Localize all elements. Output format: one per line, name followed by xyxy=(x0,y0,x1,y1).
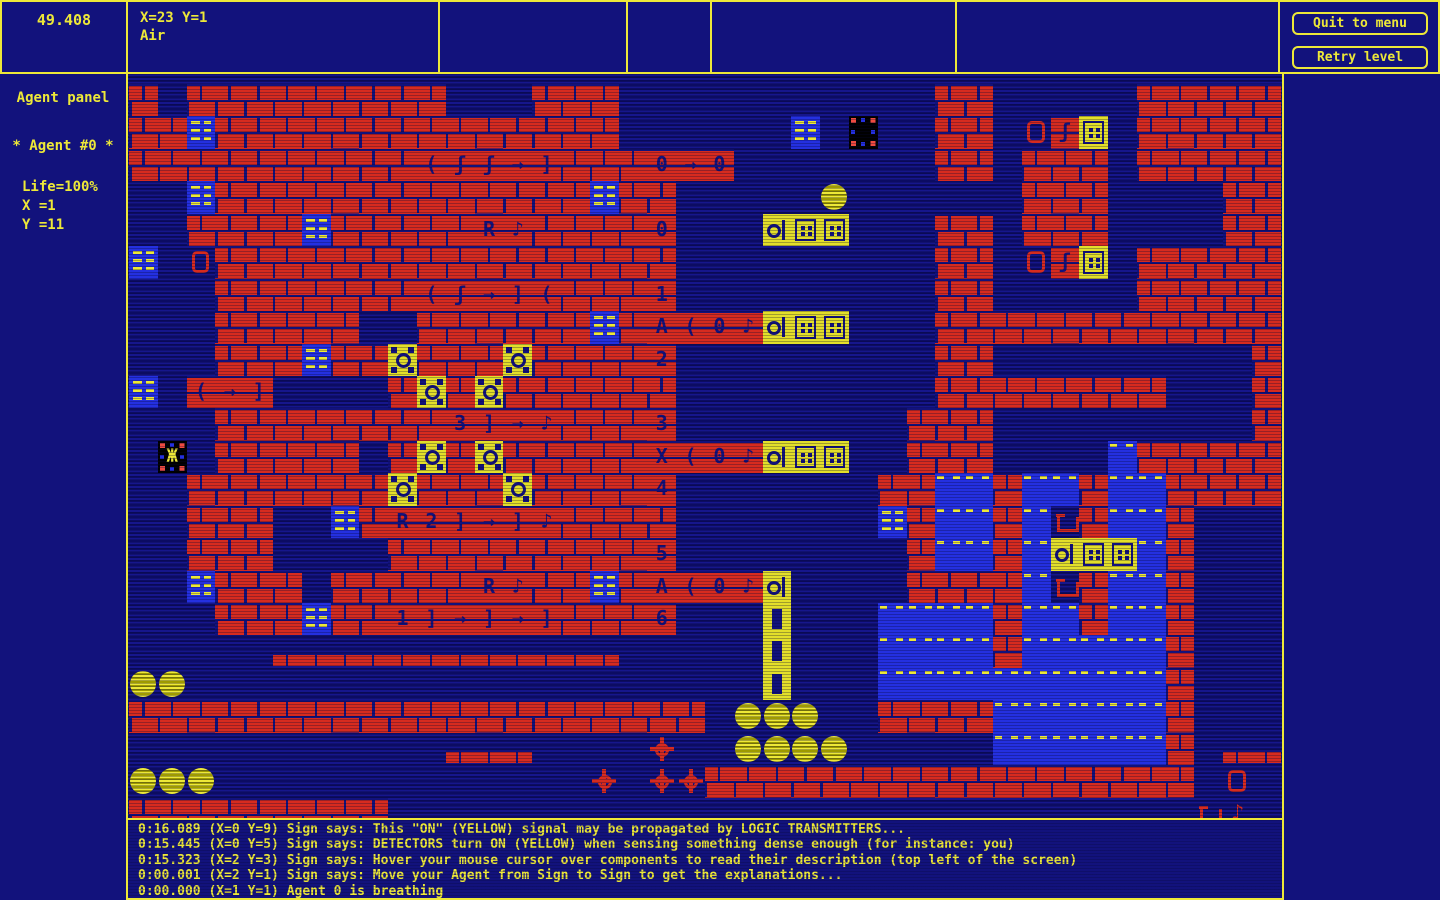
brick-wall xyxy=(590,473,619,505)
air xyxy=(302,376,331,408)
brick-wall xyxy=(417,116,446,148)
brick-wall xyxy=(619,441,648,473)
brick-wall xyxy=(273,441,302,473)
air xyxy=(676,798,705,818)
brick-wall xyxy=(561,149,590,181)
air xyxy=(1051,84,1080,116)
sign xyxy=(129,246,158,278)
brick-wall xyxy=(244,344,273,376)
brick-wall xyxy=(388,149,417,181)
air xyxy=(705,603,734,635)
air xyxy=(1108,84,1137,116)
air xyxy=(1194,668,1223,700)
air xyxy=(763,473,792,505)
chip-arrow: → xyxy=(676,149,705,181)
brick-ledge xyxy=(475,635,504,667)
brick-wall xyxy=(359,214,388,246)
brick-wall xyxy=(158,149,187,181)
air xyxy=(849,246,878,278)
brick-wall xyxy=(1252,149,1281,181)
detector-on xyxy=(503,344,532,376)
sign xyxy=(187,571,216,603)
air xyxy=(359,668,388,700)
air xyxy=(475,668,504,700)
brick-wall xyxy=(215,441,244,473)
water xyxy=(964,506,993,538)
air xyxy=(302,765,331,797)
brick-wall xyxy=(532,538,561,570)
chip-curl: ʃ xyxy=(475,149,504,181)
air xyxy=(1166,344,1195,376)
air xyxy=(302,538,331,570)
vertical-duct-on xyxy=(763,635,792,667)
brick-wall xyxy=(129,149,158,181)
air xyxy=(763,116,792,148)
air xyxy=(734,149,763,181)
air xyxy=(705,84,734,116)
yellow-ball xyxy=(129,668,158,700)
status-box-2 xyxy=(628,0,712,74)
brick-wall xyxy=(619,246,648,278)
brick-wall xyxy=(446,571,475,603)
air xyxy=(273,538,302,570)
air xyxy=(820,376,849,408)
air xyxy=(561,668,590,700)
air xyxy=(763,376,792,408)
air xyxy=(1194,733,1223,765)
brick-wall xyxy=(446,441,475,473)
air xyxy=(705,279,734,311)
level-map[interactable]: ʃ(ʃʃ→]0→0R♪0ʃ(ʃ→](1A(0♪2(→]3]→♪3ЖX(0♪4R2… xyxy=(128,74,1282,818)
brick-wall xyxy=(244,279,273,311)
brick-wall xyxy=(590,408,619,440)
air xyxy=(705,408,734,440)
air xyxy=(215,765,244,797)
status-box-3 xyxy=(712,0,957,74)
brick-wall xyxy=(359,279,388,311)
water xyxy=(1108,668,1137,700)
brick-wall xyxy=(993,635,1022,667)
brick-wall xyxy=(475,538,504,570)
air xyxy=(331,733,360,765)
transmitter-head-on xyxy=(763,571,792,603)
chip-note: ♪ xyxy=(532,408,561,440)
air xyxy=(1108,344,1137,376)
air xyxy=(619,733,648,765)
air xyxy=(647,84,676,116)
water xyxy=(1051,733,1080,765)
air xyxy=(791,181,820,213)
air xyxy=(705,246,734,278)
air xyxy=(302,506,331,538)
air xyxy=(1108,149,1137,181)
transmitter-box-on xyxy=(820,214,849,246)
air xyxy=(446,798,475,818)
agent-header: * Agent #0 * xyxy=(0,138,126,154)
brick-wall xyxy=(215,116,244,148)
air xyxy=(820,635,849,667)
yellow-ball xyxy=(158,668,187,700)
air xyxy=(446,765,475,797)
brick-wall xyxy=(561,538,590,570)
brick-wall xyxy=(388,376,417,408)
chip-arrow: → xyxy=(215,376,244,408)
chip-bracket-close: ] xyxy=(503,279,532,311)
air xyxy=(1137,344,1166,376)
brick-wall xyxy=(302,149,331,181)
air xyxy=(964,733,993,765)
sign xyxy=(302,603,331,635)
air xyxy=(907,214,936,246)
brick-wall xyxy=(273,116,302,148)
brick-wall xyxy=(1166,765,1195,797)
air xyxy=(1022,279,1051,311)
brick-wall xyxy=(935,279,964,311)
brick-wall xyxy=(1137,441,1166,473)
air xyxy=(791,571,820,603)
air xyxy=(1108,408,1137,440)
brick-wall xyxy=(215,603,244,635)
water xyxy=(907,603,936,635)
sign xyxy=(878,506,907,538)
air xyxy=(993,246,1022,278)
air xyxy=(273,668,302,700)
brick-wall xyxy=(1223,279,1252,311)
water xyxy=(1108,441,1137,473)
brick-wall xyxy=(331,279,360,311)
air xyxy=(1194,538,1223,570)
water xyxy=(1022,700,1051,732)
brick-wall xyxy=(215,344,244,376)
transmitter-box-on xyxy=(791,311,820,343)
air xyxy=(763,798,792,818)
message-log: 0:16.089 (X=0 Y=9) Sign says: This "ON" … xyxy=(128,818,1282,900)
air xyxy=(1252,798,1281,818)
air xyxy=(878,733,907,765)
brick-wall xyxy=(244,214,273,246)
brick-wall xyxy=(1194,473,1223,505)
air xyxy=(705,116,734,148)
brick-wall xyxy=(1022,149,1051,181)
air xyxy=(1252,635,1281,667)
air xyxy=(734,538,763,570)
brick-wall xyxy=(503,181,532,213)
brick-wall xyxy=(475,116,504,148)
brick-wall xyxy=(417,571,446,603)
air xyxy=(849,84,878,116)
air xyxy=(993,116,1022,148)
chip-1: 1 xyxy=(388,603,417,635)
brick-wall xyxy=(590,84,619,116)
water xyxy=(1051,700,1080,732)
air xyxy=(158,376,187,408)
brick-wall xyxy=(619,603,648,635)
brick-wall xyxy=(532,181,561,213)
water xyxy=(1079,635,1108,667)
brick-wall xyxy=(878,473,907,505)
brick-wall xyxy=(244,408,273,440)
brick-wall xyxy=(993,603,1022,635)
brick-wall xyxy=(273,181,302,213)
chip-arrow: → xyxy=(475,506,504,538)
brick-wall xyxy=(561,473,590,505)
yellow-ball xyxy=(187,765,216,797)
brick-ledge xyxy=(1223,733,1252,765)
brick-wall xyxy=(561,181,590,213)
air xyxy=(993,181,1022,213)
chip-2: 2 xyxy=(647,344,676,376)
water xyxy=(935,603,964,635)
air xyxy=(849,668,878,700)
air xyxy=(763,408,792,440)
brick-wall xyxy=(1252,441,1281,473)
brick-wall xyxy=(417,344,446,376)
chip-bracket-close: ] xyxy=(244,376,273,408)
brick-ledge xyxy=(388,635,417,667)
air xyxy=(849,603,878,635)
air xyxy=(907,181,936,213)
brick-wall xyxy=(446,181,475,213)
agent-panel: Agent panel * Agent #0 * Life=100% X =1 … xyxy=(0,74,128,900)
sign xyxy=(302,344,331,376)
water xyxy=(907,635,936,667)
brick-wall xyxy=(907,408,936,440)
water xyxy=(1137,733,1166,765)
brick-wall xyxy=(331,700,360,732)
air xyxy=(532,798,561,818)
brick-wall xyxy=(187,538,216,570)
air xyxy=(129,408,158,440)
brick-wall xyxy=(1137,311,1166,343)
chip-2: 2 xyxy=(417,506,446,538)
brick-ledge xyxy=(446,635,475,667)
brick-wall xyxy=(331,311,360,343)
brick-wall xyxy=(215,538,244,570)
brick-wall xyxy=(331,214,360,246)
brick-wall xyxy=(964,441,993,473)
chip-bracket-close: ] xyxy=(475,603,504,635)
air xyxy=(388,765,417,797)
air xyxy=(734,473,763,505)
spiked-mine xyxy=(647,733,676,765)
air xyxy=(158,538,187,570)
brick-wall xyxy=(273,279,302,311)
brick-wall xyxy=(935,116,964,148)
brick-wall xyxy=(503,441,532,473)
brick-wall xyxy=(359,116,388,148)
water xyxy=(878,668,907,700)
air xyxy=(1079,441,1108,473)
brick-wall xyxy=(964,214,993,246)
transmitter-head-on xyxy=(763,214,792,246)
water xyxy=(1079,733,1108,765)
air xyxy=(532,733,561,765)
air xyxy=(878,149,907,181)
brick-wall xyxy=(590,603,619,635)
brick-wall xyxy=(273,246,302,278)
air xyxy=(1194,376,1223,408)
air xyxy=(849,408,878,440)
brick-wall xyxy=(388,181,417,213)
brick-ledge xyxy=(417,635,446,667)
chip-0: 0 xyxy=(705,311,734,343)
air xyxy=(647,635,676,667)
brick-wall xyxy=(964,765,993,797)
air xyxy=(820,408,849,440)
brick-wall xyxy=(1252,311,1281,343)
brick-wall xyxy=(244,603,273,635)
brick-wall xyxy=(244,473,273,505)
air xyxy=(907,798,936,818)
air xyxy=(705,344,734,376)
brick-wall xyxy=(532,441,561,473)
brick-wall xyxy=(619,408,648,440)
chip-bracket-close: ] xyxy=(532,603,561,635)
brick-wall xyxy=(993,473,1022,505)
yellow-ball xyxy=(791,700,820,732)
air xyxy=(619,116,648,148)
brick-wall xyxy=(1079,311,1108,343)
air xyxy=(158,635,187,667)
brick-wall xyxy=(993,538,1022,570)
air xyxy=(1223,635,1252,667)
brick-wall xyxy=(1223,473,1252,505)
yellow-ball xyxy=(734,700,763,732)
air xyxy=(187,408,216,440)
brick-wall xyxy=(964,84,993,116)
chip-X: X xyxy=(647,441,676,473)
brick-wall xyxy=(1022,765,1051,797)
air xyxy=(1223,700,1252,732)
brick-wall xyxy=(446,311,475,343)
air xyxy=(359,733,388,765)
air xyxy=(1108,798,1137,818)
quit-to-menu-button[interactable]: Quit to menu xyxy=(1292,12,1428,35)
brick-wall xyxy=(993,376,1022,408)
brick-wall xyxy=(475,246,504,278)
brick-wall xyxy=(1194,246,1223,278)
brick-wall xyxy=(215,571,244,603)
brick-wall xyxy=(1252,246,1281,278)
brick-wall xyxy=(417,246,446,278)
brick-wall xyxy=(1079,149,1108,181)
tile-grid: ʃ(ʃʃ→]0→0R♪0ʃ(ʃ→](1A(0♪2(→]3]→♪3ЖX(0♪4R2… xyxy=(129,84,1281,818)
air xyxy=(388,733,417,765)
red-door-frame xyxy=(187,246,216,278)
air xyxy=(820,603,849,635)
air xyxy=(244,635,273,667)
brick-wall xyxy=(590,246,619,278)
brick-wall xyxy=(503,376,532,408)
brick-wall xyxy=(705,765,734,797)
brick-wall xyxy=(532,473,561,505)
air xyxy=(849,700,878,732)
chip-note: ♪ xyxy=(503,214,532,246)
air xyxy=(1022,84,1051,116)
water xyxy=(1022,635,1051,667)
brick-wall xyxy=(244,700,273,732)
sign xyxy=(590,181,619,213)
air xyxy=(475,765,504,797)
air xyxy=(1079,84,1108,116)
brick-wall xyxy=(1223,181,1252,213)
brick-wall xyxy=(503,116,532,148)
air xyxy=(705,473,734,505)
brick-wall xyxy=(475,473,504,505)
brick-wall xyxy=(964,571,993,603)
air xyxy=(1137,798,1166,818)
detector-on xyxy=(417,376,446,408)
air xyxy=(619,668,648,700)
water xyxy=(964,635,993,667)
air xyxy=(907,116,936,148)
brick-wall xyxy=(647,181,676,213)
agent-panel-title: Agent panel xyxy=(0,90,126,106)
agent-x: X =1 xyxy=(22,197,126,216)
air xyxy=(187,668,216,700)
brick-wall xyxy=(935,344,964,376)
brick-wall xyxy=(446,246,475,278)
chip-1: 1 xyxy=(647,279,676,311)
air xyxy=(676,84,705,116)
brick-wall xyxy=(244,571,273,603)
brick-wall xyxy=(1166,311,1195,343)
brick-ledge xyxy=(503,733,532,765)
brick-wall xyxy=(935,214,964,246)
brick-wall xyxy=(1137,765,1166,797)
chip-6: 6 xyxy=(647,603,676,635)
air xyxy=(158,181,187,213)
brick-wall xyxy=(964,311,993,343)
brick-wall xyxy=(388,84,417,116)
brick-wall xyxy=(1137,84,1166,116)
brick-wall xyxy=(935,84,964,116)
air xyxy=(215,668,244,700)
chip-bracket-open: ( xyxy=(417,149,446,181)
air xyxy=(417,668,446,700)
air xyxy=(158,246,187,278)
brick-wall xyxy=(302,279,331,311)
air xyxy=(734,344,763,376)
brick-wall xyxy=(388,441,417,473)
brick-wall xyxy=(907,441,936,473)
air xyxy=(676,668,705,700)
air xyxy=(388,668,417,700)
brick-wall xyxy=(302,700,331,732)
air xyxy=(619,84,648,116)
air xyxy=(187,311,216,343)
brick-wall xyxy=(331,408,360,440)
brick-wall xyxy=(388,538,417,570)
chip-bracket-open: ( xyxy=(187,376,216,408)
brick-wall xyxy=(388,116,417,148)
chip-0: 0 xyxy=(647,149,676,181)
air xyxy=(1051,408,1080,440)
water xyxy=(1108,473,1137,505)
sign xyxy=(129,376,158,408)
brick-wall xyxy=(1223,441,1252,473)
retry-level-button[interactable]: Retry level xyxy=(1292,46,1428,69)
water xyxy=(1022,733,1051,765)
air xyxy=(734,668,763,700)
brick-wall xyxy=(1252,214,1281,246)
spiked-mine xyxy=(676,765,705,797)
air xyxy=(1108,279,1137,311)
brick-wall xyxy=(935,700,964,732)
brick-wall xyxy=(359,246,388,278)
brick-wall xyxy=(1223,116,1252,148)
brick-wall xyxy=(359,798,388,818)
